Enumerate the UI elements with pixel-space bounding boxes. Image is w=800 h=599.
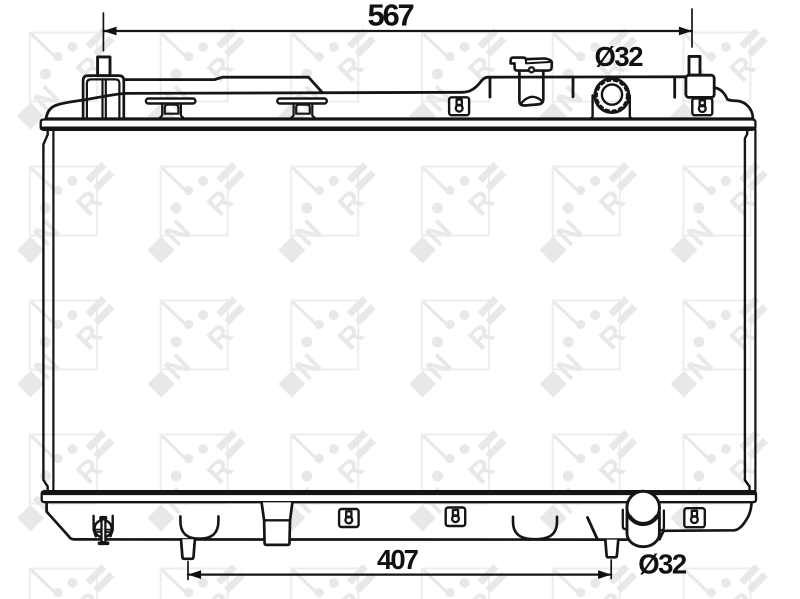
svg-text:407: 407: [377, 544, 419, 575]
svg-text:567: 567: [367, 0, 413, 32]
svg-text:Ø32: Ø32: [595, 41, 644, 72]
svg-text:Ø32: Ø32: [638, 549, 687, 580]
